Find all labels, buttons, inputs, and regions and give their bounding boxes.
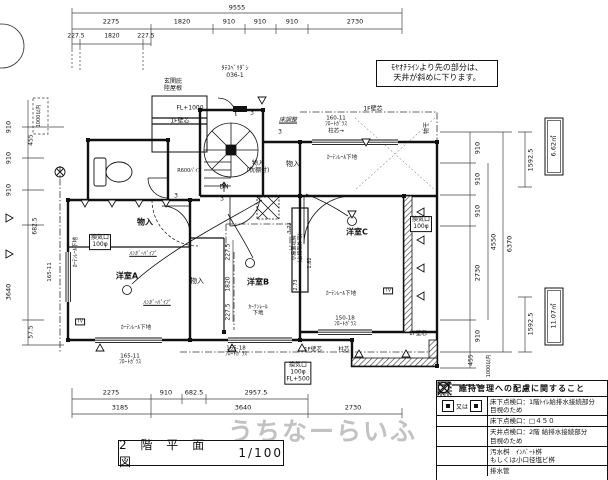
or-label: 又は: [456, 402, 468, 411]
legend-desc: 床下点検口：□４５０: [488, 416, 557, 426]
drawing-scale: 1/100: [238, 446, 283, 460]
legend-desc: 床下点検口：1階ﾄｲﾚ給排水接続部分 目視のため: [488, 397, 597, 415]
legend-row: 床下点検口：□４５０: [437, 416, 607, 427]
spiral-stair: [204, 123, 258, 192]
room-tag-leaders: [123, 194, 357, 295]
windows: [66, 140, 398, 343]
legend-desc: 天井点検口：2階 給排水接続部分 目視のため: [488, 427, 589, 445]
drawing-title: 2 階 平 面 図: [119, 436, 226, 470]
legend-row: 又は 床下点検口：1階ﾄｲﾚ給排水接続部分 目視のため: [437, 397, 607, 416]
sloped-ceiling-hatch: [355, 118, 435, 190]
maintenance-legend-table: 維持管理への配慮に関すること 又は 床下点検口：1階ﾄｲﾚ給排水接続部分 目視の…: [436, 380, 608, 480]
legend-desc: 排水管: [488, 466, 512, 476]
stair-arrow: [222, 182, 227, 192]
balcony-walls: [352, 196, 437, 366]
toilet-fixture: [94, 158, 132, 186]
floor-plan-page: 9555 2275 1820 910 910 910 2730 227.5 18…: [0, 0, 608, 480]
legend-row: 天井点検口：2階 給排水接続部分 目視のため: [437, 427, 607, 446]
floor-hatch-icon: [442, 400, 454, 412]
legend-desc: 汚水桝 ｲﾝﾊﾞｰﾄ桝 もしくは小口径塩ビ桝: [488, 447, 557, 465]
floor-hatch-icon: [470, 400, 482, 412]
dash-dot-line-icon: [437, 381, 479, 389]
first-floor-outline: [60, 112, 437, 352]
legend-row: 汚水桝 ｲﾝﾊﾞｰﾄ桝 もしくは小口径塩ビ桝: [437, 447, 607, 466]
walls: [68, 110, 437, 366]
door-swings: [148, 98, 352, 246]
legend-row: 排水管: [437, 466, 607, 476]
drawing-title-box: 2 階 平 面 図 1/100: [118, 440, 284, 466]
partition-walls: [68, 96, 308, 332]
ceiling-hatch-symbol: [257, 197, 279, 219]
compass-circle: [0, 24, 24, 68]
ceiling-slope-note: ﾓﾔｵﾁﾗｲﾝより先の部分は、 天井が斜めに下ります。: [376, 60, 498, 87]
pillar-points: [66, 108, 439, 368]
